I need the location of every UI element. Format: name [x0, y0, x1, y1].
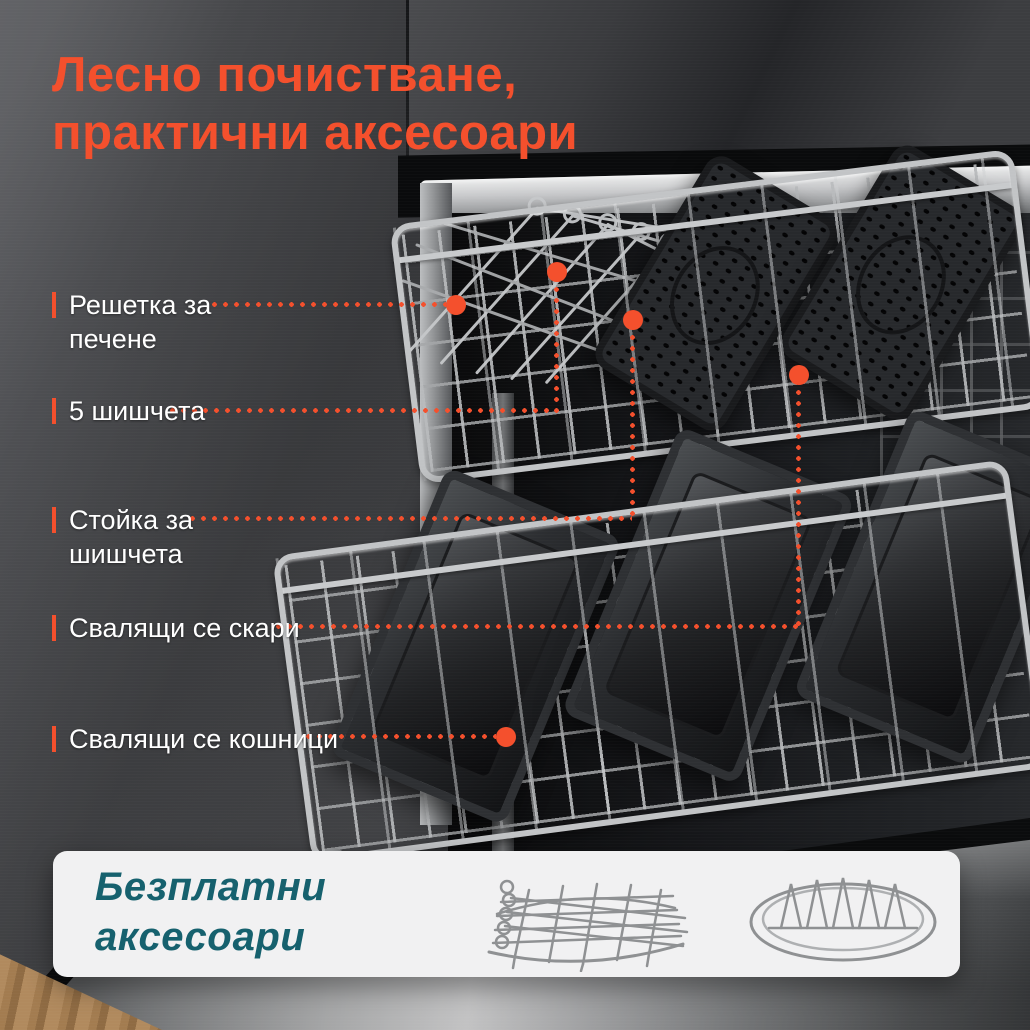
callout-label: Стойка за [69, 503, 193, 537]
title-line-1: Лесно почистване, [52, 46, 578, 104]
leader-line [170, 408, 556, 413]
callout-accent-bar [52, 398, 56, 424]
callout-label: Решетка за [69, 288, 211, 322]
card-title: Безплатни аксесоари [95, 862, 326, 962]
callout-accent-bar [52, 507, 56, 533]
callout-baking-rack: Решетка за печене [52, 288, 211, 356]
callout-removable-grills: Свалящи се скари [52, 611, 300, 645]
title-line-2: практични аксесоари [52, 104, 578, 162]
free-accessories-card: Безплатни аксесоари [53, 851, 960, 977]
leader-line [630, 324, 635, 522]
card-title-line-1: Безплатни [95, 862, 326, 912]
leader-line [796, 379, 801, 630]
callout-label: Свалящи се кошници [69, 722, 338, 756]
leader-dot [496, 727, 516, 747]
callout-label: шишчета [69, 537, 193, 571]
leader-line [276, 624, 798, 629]
callout-removable-baskets: Свалящи се кошници [52, 722, 338, 756]
promo-image: Лесно почистване, практични аксесоари Ре… [0, 0, 1030, 1030]
leader-line [212, 302, 446, 307]
leader-dot [446, 295, 466, 315]
card-title-line-2: аксесоари [95, 912, 326, 962]
callout-skewers: 5 шишчета [52, 394, 205, 428]
callout-accent-bar [52, 615, 56, 641]
skewer-rack-image [471, 856, 699, 972]
leader-line [190, 516, 632, 521]
callout-label: печене [69, 322, 211, 356]
callout-accent-bar [52, 292, 56, 318]
callout-accent-bar [52, 726, 56, 752]
page-title: Лесно почистване, практични аксесоари [52, 46, 578, 162]
callout-label: 5 шишчета [69, 394, 205, 428]
leader-dot [623, 310, 643, 330]
leader-dot [547, 262, 567, 282]
roasting-rack-image [739, 864, 947, 966]
callout-skewer-stand: Стойка за шишчета [52, 503, 193, 571]
leader-dot [789, 365, 809, 385]
leader-line [554, 276, 559, 414]
callout-label: Свалящи се скари [69, 611, 300, 645]
